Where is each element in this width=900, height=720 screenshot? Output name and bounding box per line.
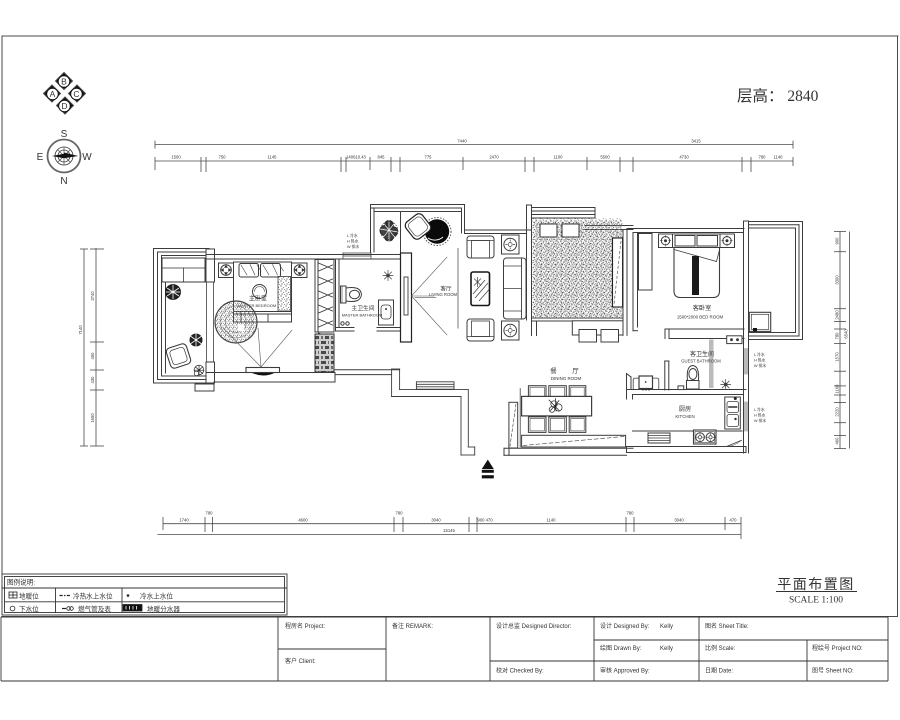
svg-text:750: 750 <box>219 155 227 160</box>
svg-text:4600: 4600 <box>298 518 308 523</box>
svg-text:1500*2000 BED ROOM: 1500*2000 BED ROOM <box>677 315 724 320</box>
svg-text:主卫生间: 主卫生间 <box>351 304 374 312</box>
svg-text:图号 Sheet NO:: 图号 Sheet NO: <box>812 668 854 675</box>
svg-text:餐 厅: 餐 厅 <box>550 366 585 375</box>
svg-text:燃气管及表: 燃气管及表 <box>78 605 111 614</box>
svg-text:1570: 1570 <box>835 352 840 362</box>
svg-text:140610.43: 140610.43 <box>346 155 366 160</box>
svg-text:厨房: 厨房 <box>679 405 691 413</box>
svg-text:H 热水: H 热水 <box>754 413 766 418</box>
svg-text:2470: 2470 <box>489 155 499 160</box>
svg-text:780: 780 <box>835 332 840 340</box>
svg-text:客卫生间: 客卫生间 <box>690 350 714 358</box>
svg-text:程绘号 Project NO:: 程绘号 Project NO: <box>812 644 863 652</box>
svg-text:7440: 7440 <box>457 139 467 144</box>
svg-text:图例说明:: 图例说明: <box>7 578 35 587</box>
svg-text:1140: 1140 <box>773 155 783 160</box>
svg-text:比例 Scale:: 比例 Scale: <box>705 644 736 652</box>
svg-text:图名 Sheet Title:: 图名 Sheet Title: <box>705 622 749 630</box>
svg-text:Kelly: Kelly <box>660 624 673 630</box>
svg-text:B: B <box>61 77 67 87</box>
svg-text:2480: 2480 <box>835 310 840 320</box>
svg-text:W 排水: W 排水 <box>754 418 766 423</box>
svg-text:校对 Checked By:: 校对 Checked By: <box>496 667 544 675</box>
svg-text:审核 Approved By:: 审核 Approved By: <box>600 667 650 675</box>
svg-text:客户 Client:: 客户 Client: <box>285 657 316 665</box>
svg-text:3040: 3040 <box>674 518 684 523</box>
svg-text:GUEST BATHROOM: GUEST BATHROOM <box>681 359 721 364</box>
svg-text:775: 775 <box>425 155 433 160</box>
svg-text:下水位: 下水位 <box>19 605 39 614</box>
svg-text:L 冷水: L 冷水 <box>754 407 765 412</box>
svg-text:450: 450 <box>90 352 95 360</box>
svg-text:900: 900 <box>835 237 840 245</box>
svg-text:平面布置图: 平面布置图 <box>777 577 855 593</box>
svg-text:程房名 Project:: 程房名 Project: <box>285 622 325 630</box>
svg-text:A: A <box>50 89 56 99</box>
svg-text:KITCHEN: KITCHEN <box>675 414 694 419</box>
svg-text:MASTER BATHROOM: MASTER BATHROOM <box>342 313 383 318</box>
svg-text:3300: 3300 <box>835 275 840 285</box>
svg-text:层高： 2840: 层高： 2840 <box>737 87 819 105</box>
svg-text:S: S <box>61 129 68 140</box>
svg-text:900 470: 900 470 <box>477 518 493 523</box>
svg-text:C: C <box>73 89 79 99</box>
svg-text:冷水上水位: 冷水上水位 <box>140 592 173 601</box>
svg-text:DINING ROOM: DINING ROOM <box>551 376 582 381</box>
svg-text:1650: 1650 <box>90 413 95 423</box>
svg-text:2220: 2220 <box>835 407 840 417</box>
svg-text:845: 845 <box>378 155 386 160</box>
svg-text:1160: 1160 <box>835 384 840 394</box>
svg-text:H 热水: H 热水 <box>754 358 766 363</box>
svg-text:4730: 4730 <box>679 155 689 160</box>
svg-text:3740: 3740 <box>90 291 95 301</box>
svg-text:客卧室: 客卧室 <box>693 304 712 312</box>
svg-text:LIVING ROOM: LIVING ROOM <box>429 292 457 297</box>
svg-text:780: 780 <box>759 155 767 160</box>
svg-text:设计 Designed By:: 设计 Designed By: <box>600 622 650 630</box>
svg-text:主卧室: 主卧室 <box>249 295 267 303</box>
svg-text:Kelly: Kelly <box>660 646 673 652</box>
svg-text:N: N <box>60 176 67 187</box>
svg-text:15145: 15145 <box>443 528 455 533</box>
svg-text:E: E <box>37 152 44 163</box>
svg-text:1145: 1145 <box>267 155 277 160</box>
svg-text:H 热水: H 热水 <box>347 239 359 244</box>
svg-text:L 冷水: L 冷水 <box>347 233 358 238</box>
svg-text:430: 430 <box>90 376 95 384</box>
svg-text:470: 470 <box>730 518 738 523</box>
svg-text:L 冷水: L 冷水 <box>754 352 765 357</box>
svg-text:SCALE 1:100: SCALE 1:100 <box>789 596 843 606</box>
svg-text:日期 Date:: 日期 Date: <box>705 667 733 675</box>
svg-text:设计总监 Designed Director:: 设计总监 Designed Director: <box>496 622 572 630</box>
svg-text:W: W <box>82 152 92 163</box>
svg-text:1140: 1140 <box>546 518 556 523</box>
svg-text:3415: 3415 <box>691 139 701 144</box>
svg-text:460: 460 <box>835 437 840 445</box>
svg-text:780: 780 <box>396 511 404 516</box>
svg-text:6540: 6540 <box>844 329 849 339</box>
svg-text:绘图 Drawn By:: 绘图 Drawn By: <box>600 644 642 652</box>
svg-text:D: D <box>61 101 67 111</box>
svg-text:W 排水: W 排水 <box>754 363 766 368</box>
svg-text:冷热水上水位: 冷热水上水位 <box>73 592 113 601</box>
svg-text:地暖分水器: 地暖分水器 <box>147 605 180 614</box>
svg-text:1740: 1740 <box>179 518 189 523</box>
svg-text:780: 780 <box>206 511 214 516</box>
svg-text:地暖位: 地暖位 <box>19 592 39 601</box>
svg-text:备注 REMARK:: 备注 REMARK: <box>392 622 433 630</box>
svg-text:3040: 3040 <box>431 518 441 523</box>
svg-text:7140: 7140 <box>78 325 83 335</box>
svg-text:780: 780 <box>627 511 635 516</box>
svg-text:1500: 1500 <box>171 155 181 160</box>
svg-text:W 排水: W 排水 <box>347 244 359 249</box>
svg-text:5500: 5500 <box>600 155 610 160</box>
svg-text:1100: 1100 <box>553 155 563 160</box>
